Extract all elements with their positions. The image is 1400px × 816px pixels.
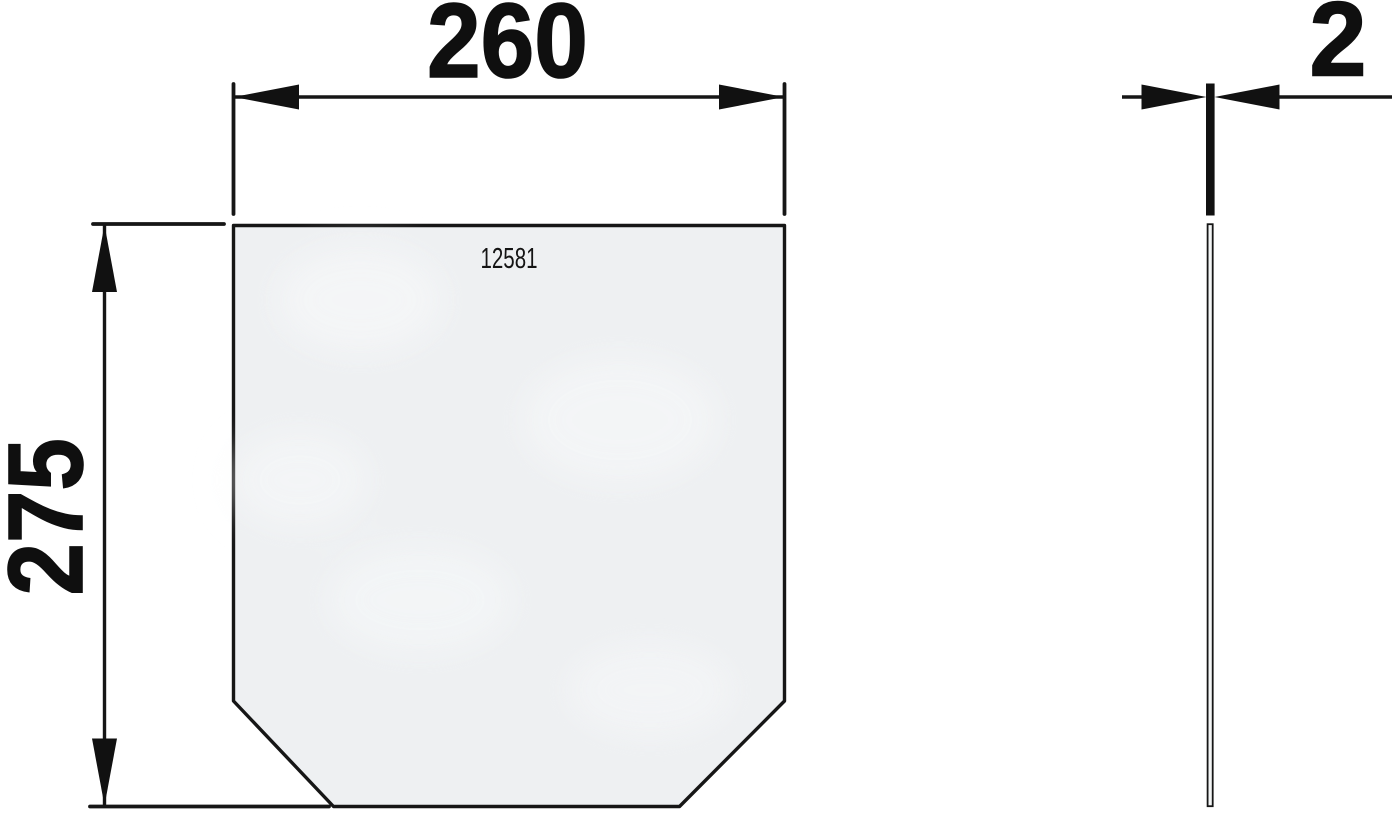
svg-text:12581: 12581 bbox=[480, 244, 537, 275]
svg-text:2: 2 bbox=[1309, 0, 1366, 99]
svg-text:275: 275 bbox=[0, 438, 105, 595]
svg-text:260: 260 bbox=[427, 0, 588, 100]
